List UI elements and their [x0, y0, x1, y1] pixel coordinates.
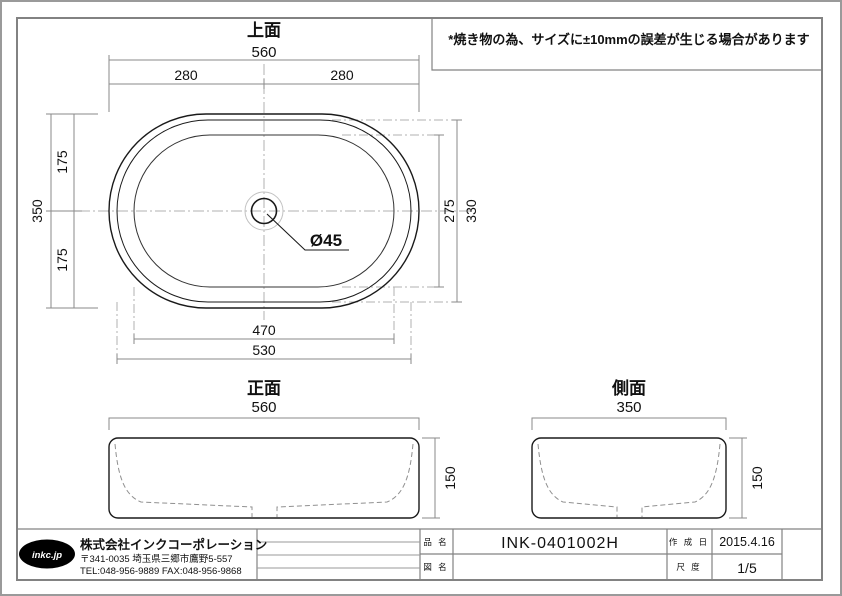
tolerance-note: *焼き物の為、サイズに±10mmの誤差が生じる場合があります	[448, 32, 809, 47]
cad-drawing-canvas: *焼き物の為、サイズに±10mmの誤差が生じる場合があります 上面 560	[2, 2, 842, 596]
top-dim-560-label: 560	[251, 44, 276, 61]
created-date-label: 作 成 日	[669, 537, 709, 547]
scale-label: 尺 度	[676, 562, 701, 572]
company-tel-fax: TEL:048-956-9889 FAX:048-956-9868	[80, 566, 242, 577]
side-height-dim	[729, 438, 747, 518]
side-hidden-profile	[538, 444, 720, 517]
side-body-outline	[532, 438, 726, 518]
top-dim-530-label: 530	[252, 342, 276, 358]
top-dim-275-label: 275	[441, 199, 457, 223]
note-box: *焼き物の為、サイズに±10mmの誤差が生じる場合があります	[432, 18, 822, 70]
top-view: 上面 560 Ø45	[29, 21, 479, 364]
side-width-dim-bracket	[532, 418, 726, 430]
side-view: 側面 350 150	[532, 378, 765, 518]
top-dim-470-label: 470	[252, 322, 276, 338]
product-name-label: 品 名	[423, 537, 448, 547]
product-name-value: INK-0401002H	[501, 535, 619, 552]
front-dim-150-label: 150	[442, 466, 458, 490]
extension-centerlines	[117, 120, 462, 364]
title-block: inkc.jp 株式会社インクコーポレーション 〒341-0035 埼玉県三郷市…	[17, 529, 822, 580]
company-logo-text: inkc.jp	[32, 550, 62, 561]
front-view-title: 正面	[247, 379, 281, 398]
top-depth-dims	[46, 114, 98, 308]
scale-value: 1/5	[737, 560, 757, 576]
top-dim-350-label: 350	[29, 199, 45, 223]
company-address: 〒341-0035 埼玉県三郷市鷹野5-557	[80, 553, 233, 565]
top-view-title: 上面	[247, 21, 281, 40]
top-dim-280-left-label: 280	[174, 67, 198, 83]
front-view: 正面 560 150	[109, 379, 458, 518]
drawing-name-label: 図 名	[423, 562, 448, 572]
top-dim-330-label: 330	[463, 199, 479, 223]
front-height-dim	[422, 438, 440, 518]
drawing-sheet: *焼き物の為、サイズに±10mmの誤差が生じる場合があります 上面 560	[0, 0, 842, 596]
front-width-dim-bracket	[109, 418, 419, 430]
front-hidden-profile	[115, 444, 413, 517]
revision-rows	[257, 542, 420, 568]
front-dim-560-label: 560	[251, 399, 276, 416]
top-dim-175-lower-label: 175	[54, 248, 70, 272]
drain-diameter-label: Ø45	[310, 231, 342, 250]
front-body-outline	[109, 438, 419, 518]
side-dim-350-label: 350	[616, 399, 641, 416]
side-dim-150-label: 150	[749, 466, 765, 490]
top-dim-280-right-label: 280	[330, 67, 354, 83]
side-view-title: 側面	[611, 378, 646, 398]
created-date-value: 2015.4.16	[719, 535, 775, 549]
company-name: 株式会社インクコーポレーション	[80, 537, 267, 552]
top-dim-175-upper-label: 175	[54, 150, 70, 174]
